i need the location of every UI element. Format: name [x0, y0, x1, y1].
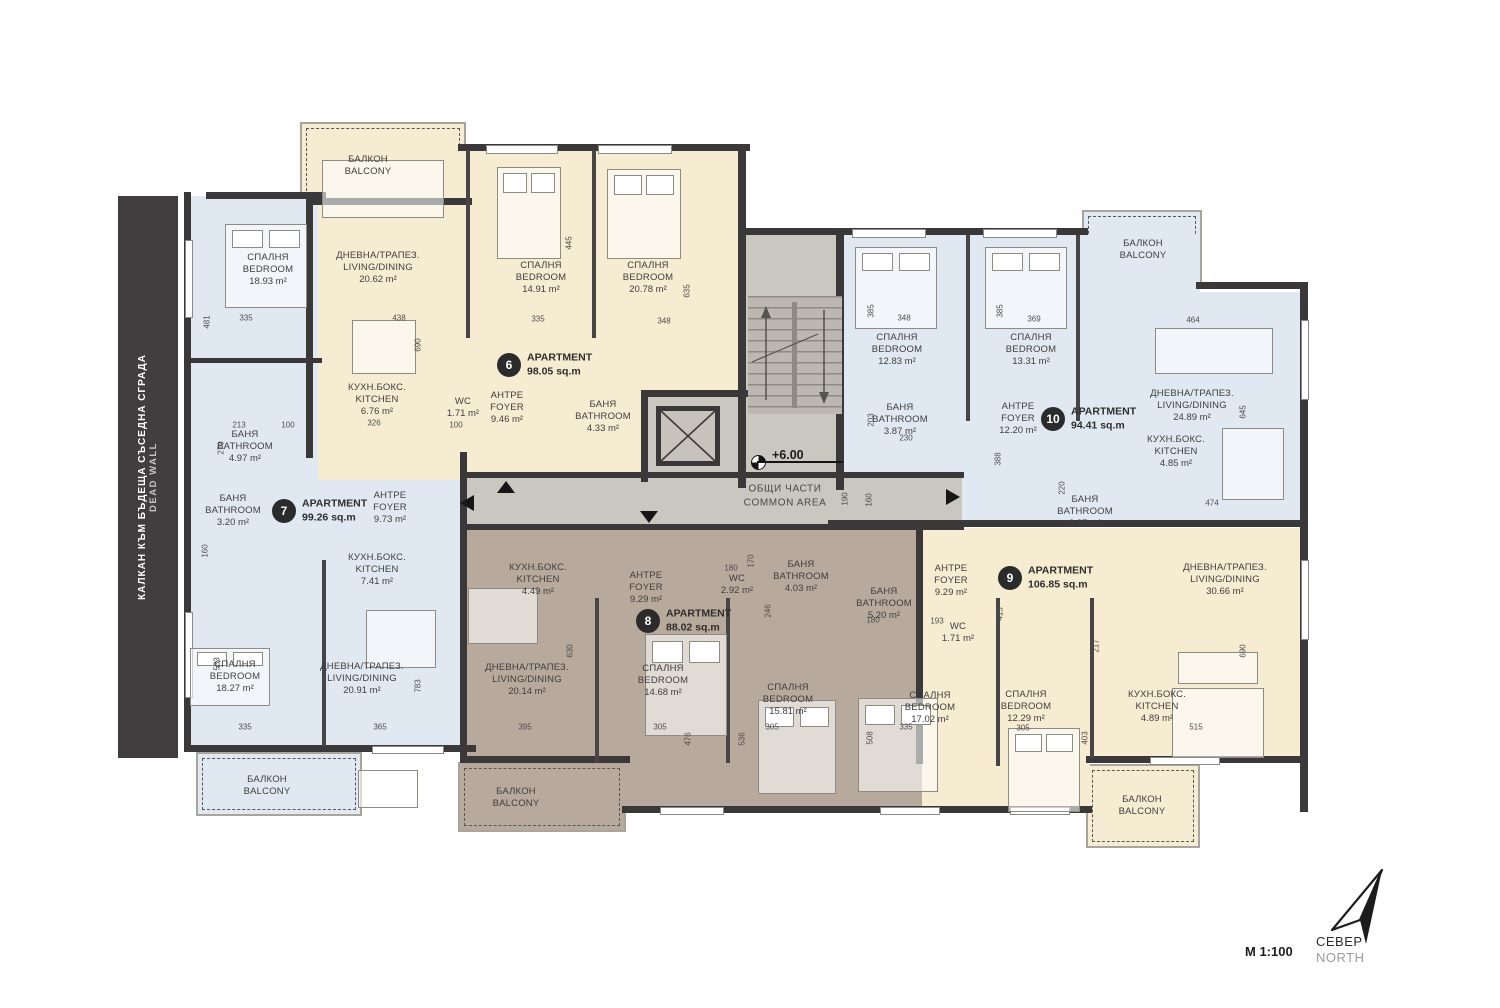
room-label-apt10-bedroom2: СПАЛНЯBEDROOM13.31 m² [1006, 332, 1057, 368]
wall-segment [190, 358, 322, 363]
pillow-shape [503, 173, 527, 193]
dimension-label: 645 [1239, 405, 1248, 418]
room-label-apt10-balcony: БАЛКОНBALCONY [1120, 238, 1167, 262]
window [1301, 560, 1309, 640]
sofa-shape [1155, 328, 1273, 374]
dimension-label: 190 [841, 492, 850, 505]
room-label-apt6-balcony: БАЛКОНBALCONY [345, 154, 392, 178]
room-label-apt7-bathroom1: БАНЯBATHROOM4.97 m² [217, 429, 273, 465]
window [598, 145, 672, 154]
room-label-apt6-foyer: АНТРЕFOYER9.46 m² [490, 390, 524, 426]
window [185, 240, 193, 318]
partition-wall [996, 598, 1000, 766]
room-label-apt6-bathroom: БАНЯBATHROOM4.33 m² [575, 399, 631, 435]
apartment-9-badge: 9 [998, 566, 1022, 590]
dimension-label: 305 [1016, 724, 1029, 733]
room-label-apt8-living: ДНЕВНА/ТРАПЕЗ.LIVING/DINING20.14 m² [485, 662, 569, 698]
partition-wall [592, 150, 596, 338]
level-marker-icon [751, 455, 766, 470]
apartment-8-title: APARTMENT88.02 sq.m [666, 607, 731, 634]
apartment-8-badge: 8 [636, 609, 660, 633]
dimension-label: 365 [373, 723, 386, 732]
dimension-label: 335 [239, 314, 252, 323]
dimension-label: 170 [747, 554, 756, 567]
dimension-label: 630 [566, 644, 575, 657]
window [486, 145, 558, 154]
room-label-apt6-bedroom1: СПАЛНЯBEDROOM14.91 m² [516, 260, 567, 296]
dimension-label: 100 [449, 421, 462, 430]
pillow-shape [1015, 734, 1042, 752]
dimension-label: 445 [565, 236, 574, 249]
partition-wall [966, 235, 970, 421]
stairs-arrows [748, 296, 842, 414]
room-label-apt9-living: ДНЕВНА/ТРАПЕЗ.LIVING/DINING30.66 m² [1183, 562, 1267, 598]
window [372, 746, 444, 754]
dimension-label: 783 [414, 679, 423, 692]
floor-plan-canvas: 4813354386902131003262701004453353486353… [0, 0, 1500, 1008]
pillow-shape [899, 253, 930, 271]
apartment-8-balcony [458, 762, 626, 832]
room-label-apt7-kitchen: КУХН.БОКС.KITCHEN7.41 m² [348, 552, 406, 588]
dimension-label: 536 [738, 732, 747, 745]
elevator-x-icon [661, 411, 715, 461]
dimension-label: 690 [414, 338, 423, 351]
room-label-apt10-living: ДНЕВНА/ТРАПЕЗ.LIVING/DINING24.89 m² [1150, 388, 1234, 424]
dimension-label: 180 [724, 564, 737, 573]
entrance-arrow-right-icon [946, 489, 960, 505]
room-label-apt6-living: ДНЕВНА/ТРАПЕЗ.LIVING/DINING20.62 m² [336, 250, 420, 286]
partition-wall [322, 560, 326, 746]
dimension-label: 348 [657, 317, 670, 326]
bed-shape [1008, 728, 1080, 812]
wall-segment [460, 756, 630, 763]
room-label-apt6-kitchen: КУХН.БОКС.KITCHEN6.76 m² [348, 382, 406, 418]
room-label-apt7-bathroom2: БАНЯBATHROOM3.20 m² [205, 493, 261, 529]
dimension-label: 220 [1058, 481, 1067, 494]
bed-shape [497, 167, 561, 259]
dimension-label: 476 [684, 732, 693, 745]
apartment-9-title: APARTMENT106.85 sq.m [1028, 564, 1093, 591]
room-label-apt10-foyer: АНТРЕFOYER12.20 m² [999, 401, 1037, 437]
table-shape [1222, 428, 1284, 500]
entrance-arrow-up-icon [497, 481, 515, 493]
pillow-shape [865, 705, 895, 725]
room-label-apt7-balcony: БАЛКОНBALCONY [244, 774, 291, 798]
pillow-shape [531, 173, 555, 193]
dimension-label: 348 [897, 314, 910, 323]
room-label-apt8-bedroom2: СПАЛНЯBEDROOM15.81 m² [763, 682, 814, 718]
dimension-label: 100 [281, 421, 294, 430]
dimension-label: 385 [867, 304, 876, 317]
room-label-apt8-wc: WC2.92 m² [721, 573, 753, 597]
dimension-label: 415 [996, 607, 1005, 620]
room-label-apt6-wc: WC1.71 m² [447, 396, 479, 420]
room-label-apt8-bathroom: БАНЯBATHROOM4.03 m² [773, 559, 829, 595]
dimension-label: 481 [203, 315, 212, 328]
room-label-apt10-bathroom1: БАНЯBATHROOM3.87 m² [872, 402, 928, 438]
wall-segment [1196, 282, 1308, 289]
dimension-label: 326 [367, 419, 380, 428]
table-shape [352, 320, 416, 374]
dimension-label: 335 [238, 723, 251, 732]
room-label-apt9-foyer: АНТРЕFOYER9.29 m² [934, 563, 968, 599]
dimension-label: 305 [653, 723, 666, 732]
window [983, 229, 1057, 238]
wall-segment [462, 472, 964, 478]
table-shape [366, 610, 436, 668]
room-label-apt8-balcony: БАЛКОНBALCONY [493, 786, 540, 810]
dimension-label: 335 [531, 315, 544, 324]
pillow-shape [232, 230, 263, 248]
room-label-apt7-bedroom1: СПАЛНЯBEDROOM18.93 m² [243, 252, 294, 288]
room-label-apt9-bedroom1: СПАЛНЯBEDROOM17.02 m² [905, 690, 956, 726]
wall-segment [641, 390, 753, 397]
stairs [748, 296, 842, 414]
room-label-apt7-foyer: АНТРЕFOYER9.73 m² [373, 490, 407, 526]
window [880, 807, 940, 815]
pillow-shape [1046, 734, 1073, 752]
apartment-10-badge: 10 [1041, 407, 1065, 431]
room-label-apt9-wc: WC1.71 m² [942, 621, 974, 645]
partition-wall [595, 598, 599, 763]
room-label-apt9-balcony: БАЛКОНBALCONY [1119, 794, 1166, 818]
dimension-label: 515 [1189, 723, 1202, 732]
dimension-label: 395 [518, 723, 531, 732]
pillow-shape [269, 230, 300, 248]
partition-wall [1090, 598, 1094, 758]
north-label-en: NORTH [1316, 950, 1364, 965]
window [852, 229, 926, 238]
scale-label: М 1:100 [1245, 944, 1293, 959]
dead-wall-bar: КАЛКАН КЪМ БЪДЕЩА СЪСЕДНА СГРАДА DEAD WA… [118, 196, 178, 758]
dimension-label: 305 [765, 723, 778, 732]
apartment-7-title: APARTMENT99.26 sq.m [302, 497, 367, 524]
entrance-arrow-down-icon [640, 511, 658, 523]
dimension-label: 690 [1239, 644, 1248, 657]
dimension-label: 474 [1205, 499, 1218, 508]
dimension-label: 213 [232, 421, 245, 430]
wall-segment [306, 196, 313, 458]
dimension-label: 385 [996, 304, 1005, 317]
room-label-apt10-kitchen: КУХН.БОКС.KITCHEN4.85 m² [1147, 434, 1205, 470]
room-label-apt7-living: ДНЕВНА/ТРАПЕЗ.LIVING/DINING20.91 m² [320, 661, 404, 697]
partition-wall [466, 150, 470, 338]
pillow-shape [646, 175, 674, 195]
apartment-7-badge: 7 [272, 499, 296, 523]
apartment-10-title: APARTMENT94.41 sq.m [1071, 405, 1136, 432]
pillow-shape [652, 641, 683, 663]
room-label-apt6-bedroom2: СПАЛНЯBEDROOM20.78 m² [623, 260, 674, 296]
dimension-label: 388 [994, 452, 1003, 465]
room-label-apt8-bedroom1: СПАЛНЯBEDROOM14.68 m² [638, 663, 689, 699]
room-label-apt8-foyer: АНТРЕFOYER9.29 m² [629, 570, 663, 606]
dimension-label: 508 [866, 731, 875, 744]
pillow-shape [992, 253, 1023, 271]
dead-wall-label: КАЛКАН КЪМ БЪДЕЩА СЪСЕДНА СГРАДА DEAD WA… [137, 207, 159, 747]
window [1301, 320, 1309, 400]
apartment-6-badge: 6 [497, 353, 521, 377]
pillow-shape [1029, 253, 1060, 271]
dimension-label: 246 [764, 604, 773, 617]
north-arrow-icon [1318, 866, 1402, 948]
window [1150, 757, 1220, 765]
room-label-apt9-kitchen: КУХН.БОКС.KITCHEN4.89 m² [1128, 689, 1186, 725]
room-label-apt10-bathroom2: БАНЯBATHROOM3.87 m² [1057, 494, 1113, 530]
sofa-shape [358, 770, 418, 808]
dimension-label: 160 [201, 544, 210, 557]
dimension-label: 438 [392, 314, 405, 323]
entrance-arrow-left-icon [460, 495, 474, 511]
bed-shape [607, 169, 681, 259]
wall-segment [738, 228, 842, 235]
pillow-shape [862, 253, 893, 271]
window [660, 807, 724, 815]
pillow-shape [614, 175, 642, 195]
partition-wall [1076, 235, 1080, 421]
room-label-apt9-bathroom: БАНЯBATHROOM5.20 m² [856, 586, 912, 622]
room-label-apt8-kitchen: КУХН.БОКС.KITCHEN4.49 m² [509, 562, 567, 598]
dimension-label: 635 [683, 284, 692, 297]
wall-segment [641, 390, 648, 482]
room-label-apt10-bedroom1: СПАЛНЯBEDROOM12.83 m² [872, 332, 923, 368]
elevator-shaft [656, 406, 720, 466]
dimension-label: 369 [1027, 315, 1040, 324]
room-label-apt7-bedroom2: СПАЛНЯBEDROOM18.27 m² [210, 659, 261, 695]
wall-segment [738, 144, 746, 488]
dimension-label: 464 [1186, 316, 1199, 325]
level-value: +6.00 [772, 448, 804, 462]
dimension-label: 403 [1081, 731, 1090, 744]
common-area-label: ОБЩИ ЧАСТИCOMMON AREA [744, 483, 827, 510]
dimension-label: 217 [1092, 639, 1101, 652]
pillow-shape [689, 641, 720, 663]
dimension-label: 160 [865, 493, 874, 506]
room-label-apt9-bedroom2: СПАЛНЯBEDROOM12.29 m² [1001, 689, 1052, 725]
apartment-6-title: APARTMENT98.05 sq.m [527, 351, 592, 378]
